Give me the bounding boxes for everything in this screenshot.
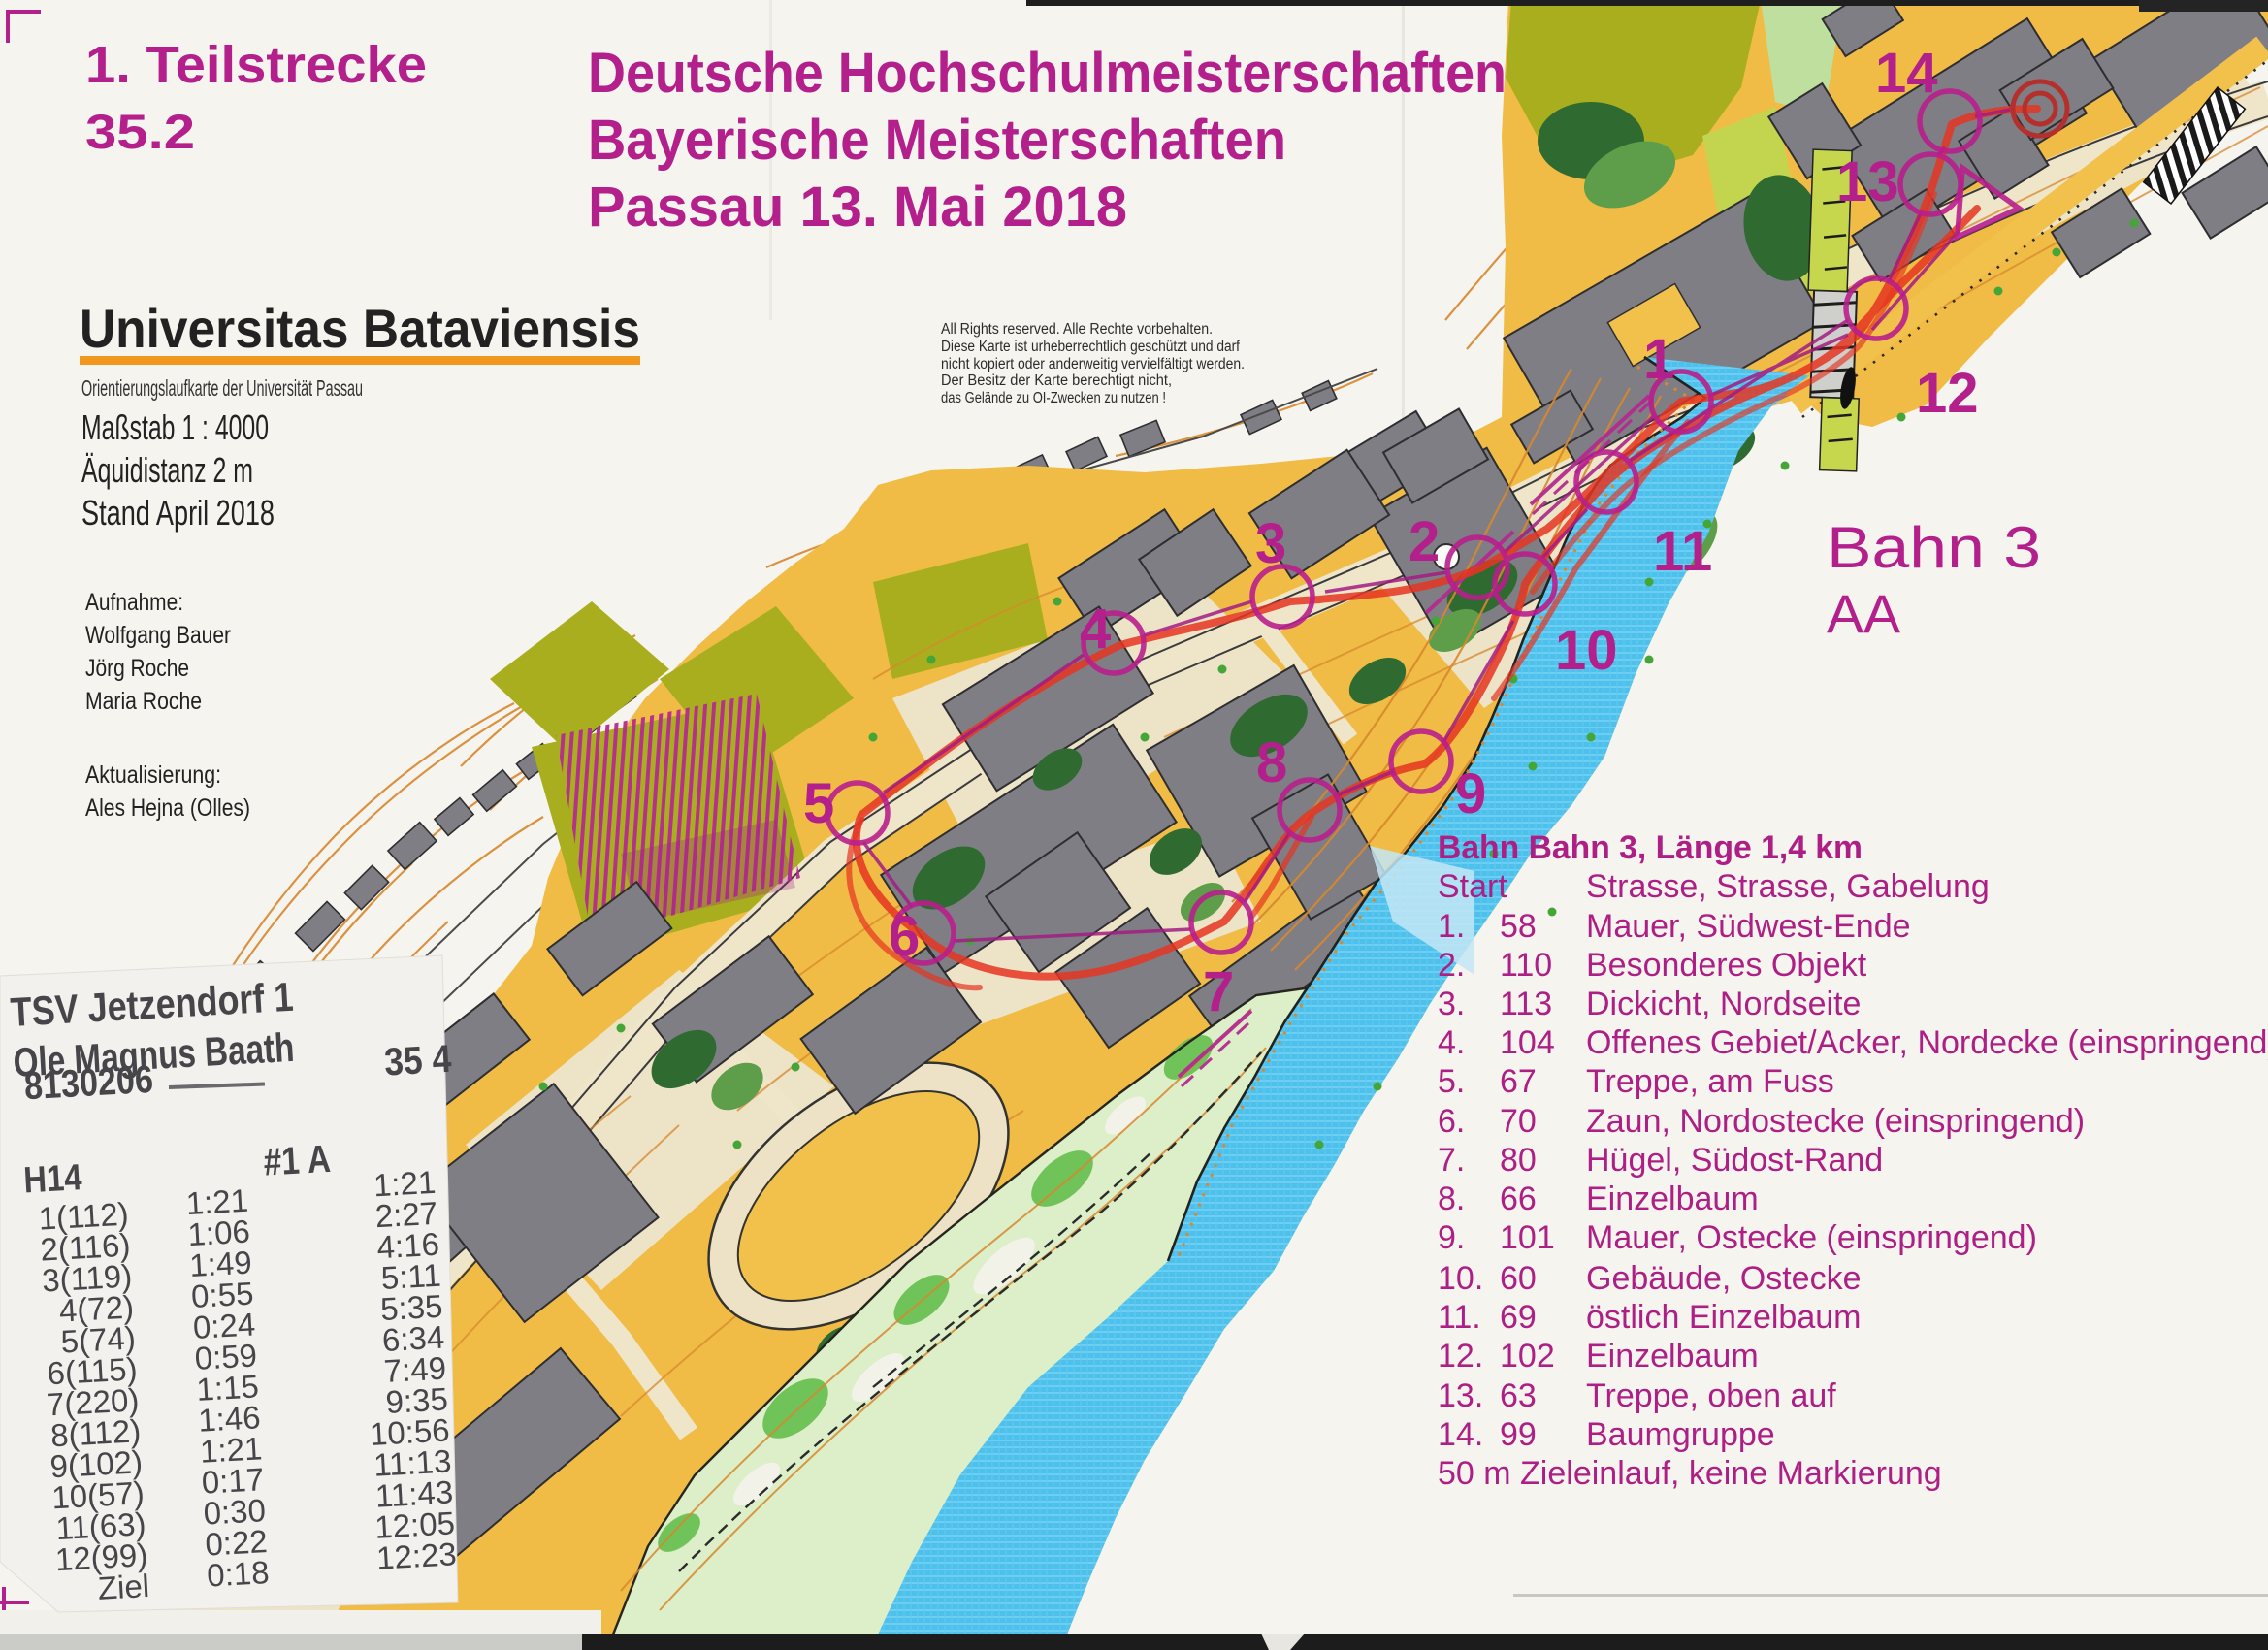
svg-text:Strasse, Strasse, Gabelung: Strasse, Strasse, Gabelung [1586, 868, 1990, 905]
svg-text:0:18: 0:18 [206, 1554, 270, 1594]
svg-text:Offenes Gebiet/Acker, Nordecke: Offenes Gebiet/Acker, Nordecke (einsprin… [1586, 1024, 2268, 1061]
svg-text:8: 8 [1256, 731, 1287, 794]
svg-text:Hügel, Südost-Rand: Hügel, Südost-Rand [1586, 1142, 1883, 1179]
svg-text:13: 13 [1836, 150, 1899, 213]
svg-text:Ales Hejna (Olles): Ales Hejna (Olles) [85, 794, 250, 822]
svg-text:99: 99 [1500, 1416, 1537, 1453]
svg-text:Zaun, Nordostecke (einspringen: Zaun, Nordostecke (einspringend) [1586, 1103, 2085, 1140]
svg-text:Jörg Roche: Jörg Roche [85, 655, 189, 682]
svg-text:6.: 6. [1438, 1103, 1465, 1140]
svg-text:Wolfgang Bauer: Wolfgang Bauer [85, 622, 231, 649]
svg-text:58: 58 [1500, 908, 1537, 945]
svg-text:H14: H14 [22, 1157, 82, 1201]
svg-text:35.2: 35.2 [85, 105, 195, 159]
svg-text:#1 A: #1 A [263, 1138, 332, 1184]
svg-text:63: 63 [1500, 1377, 1537, 1414]
svg-text:Maßstab 1 : 4000: Maßstab 1 : 4000 [81, 407, 269, 447]
svg-text:All Rights reserved. Alle Rec: All Rights reserved. Alle Rechte vorbeha… [941, 321, 1213, 338]
svg-text:2.: 2. [1438, 947, 1465, 984]
svg-text:Äquidistanz 2 m: Äquidistanz 2 m [81, 450, 253, 490]
svg-text:Dickicht, Nordseite: Dickicht, Nordseite [1586, 986, 1861, 1022]
svg-text:Besonderes Objekt: Besonderes Objekt [1586, 947, 1867, 984]
svg-text:10: 10 [1555, 619, 1618, 682]
svg-text:102: 102 [1500, 1338, 1555, 1375]
svg-text:Der Besitz der Karte berechti: Der Besitz der Karte berechtigt nicht, [941, 372, 1172, 389]
svg-text:Mauer, Südwest-Ende: Mauer, Südwest-Ende [1586, 908, 1911, 945]
svg-text:Bayerische Meisterschaften: Bayerische Meisterschaften [588, 109, 1286, 172]
svg-text:Diese Karte ist urheberrechtli: Diese Karte ist urheberrechtlich geschüt… [941, 339, 1241, 355]
svg-text:Orientierungslaufkarte der Uni: Orientierungslaufkarte der Universität P… [81, 375, 363, 401]
svg-text:5: 5 [803, 772, 834, 835]
svg-text:AA: AA [1827, 583, 1901, 644]
svg-text:110: 110 [1500, 947, 1552, 984]
svg-text:Treppe, am Fuss: Treppe, am Fuss [1586, 1063, 1834, 1100]
svg-text:Ziel: Ziel [97, 1568, 150, 1606]
svg-text:14.: 14. [1438, 1416, 1483, 1453]
svg-text:104: 104 [1500, 1024, 1555, 1061]
svg-text:das Gelände zu OI-Zwecken zu n: das Gelände zu OI-Zwecken zu nutzen ! [941, 390, 1166, 406]
svg-text:Einzelbaum: Einzelbaum [1586, 1338, 1759, 1375]
svg-text:1: 1 [1643, 328, 1674, 391]
svg-text:3.: 3. [1438, 986, 1465, 1022]
svg-text:8130206: 8130206 [23, 1058, 154, 1108]
svg-text:66: 66 [1500, 1181, 1537, 1217]
svg-text:67: 67 [1500, 1063, 1537, 1100]
svg-text:Deutsche Hochschulmeisterschaf: Deutsche Hochschulmeisterschaften [588, 42, 1507, 105]
svg-text:4: 4 [1080, 598, 1111, 661]
svg-text:Maria Roche: Maria Roche [85, 688, 202, 715]
svg-text:60: 60 [1500, 1260, 1537, 1297]
svg-text:Bahn Bahn 3, Länge 1,4 km: Bahn Bahn 3, Länge 1,4 km [1438, 829, 1863, 866]
svg-text:6: 6 [889, 905, 920, 968]
svg-text:Bahn 3: Bahn 3 [1827, 515, 2041, 580]
svg-text:11.: 11. [1438, 1299, 1481, 1336]
svg-text:10.: 10. [1438, 1260, 1483, 1297]
svg-text:Baumgruppe: Baumgruppe [1586, 1416, 1775, 1453]
svg-text:113: 113 [1500, 986, 1552, 1022]
svg-text:Gebäude, Ostecke: Gebäude, Ostecke [1586, 1260, 1862, 1297]
svg-text:50 m Zieleinlauf, keine Markie: 50 m Zieleinlauf, keine Markierung [1438, 1455, 1942, 1492]
svg-text:12: 12 [1916, 362, 1979, 425]
svg-text:7: 7 [1203, 960, 1234, 1023]
svg-text:Mauer, Ostecke (einspringend): Mauer, Ostecke (einspringend) [1586, 1219, 2037, 1256]
svg-text:Passau 13. Mai 2018: Passau 13. Mai 2018 [588, 176, 1127, 239]
svg-text:östlich Einzelbaum: östlich Einzelbaum [1586, 1299, 1861, 1336]
svg-text:Universitas Bataviensis: Universitas Bataviensis [80, 298, 640, 359]
svg-text:35 4: 35 4 [383, 1038, 453, 1084]
svg-text:9: 9 [1455, 762, 1486, 825]
svg-text:Aufnahme:: Aufnahme: [85, 589, 183, 616]
svg-text:2: 2 [1409, 510, 1440, 573]
svg-text:70: 70 [1500, 1103, 1537, 1140]
svg-text:5.: 5. [1438, 1063, 1465, 1100]
svg-text:Treppe, oben auf: Treppe, oben auf [1586, 1377, 1836, 1414]
svg-text:11: 11 [1653, 520, 1712, 583]
svg-text:69: 69 [1500, 1299, 1537, 1336]
svg-text:12.: 12. [1438, 1338, 1483, 1375]
svg-text:Start: Start [1438, 868, 1507, 905]
svg-text:1. Teilstrecke: 1. Teilstrecke [85, 36, 427, 94]
svg-text:nicht kopiert oder anderweitig: nicht kopiert oder anderweitig vervielfä… [941, 356, 1245, 372]
svg-text:101: 101 [1500, 1219, 1555, 1256]
svg-text:9.: 9. [1438, 1219, 1465, 1256]
svg-text:13.: 13. [1438, 1377, 1483, 1414]
svg-text:1.: 1. [1438, 908, 1465, 945]
svg-text:14: 14 [1875, 42, 1938, 105]
svg-text:8.: 8. [1438, 1181, 1465, 1217]
svg-text:4.: 4. [1438, 1024, 1465, 1061]
svg-text:Stand April 2018: Stand April 2018 [81, 493, 275, 533]
svg-text:80: 80 [1500, 1142, 1537, 1179]
svg-text:3: 3 [1255, 512, 1286, 575]
svg-text:7.: 7. [1438, 1142, 1465, 1179]
svg-text:Aktualisierung:: Aktualisierung: [85, 761, 221, 789]
svg-text:12:23: 12:23 [375, 1536, 458, 1576]
svg-text:Einzelbaum: Einzelbaum [1586, 1181, 1759, 1217]
